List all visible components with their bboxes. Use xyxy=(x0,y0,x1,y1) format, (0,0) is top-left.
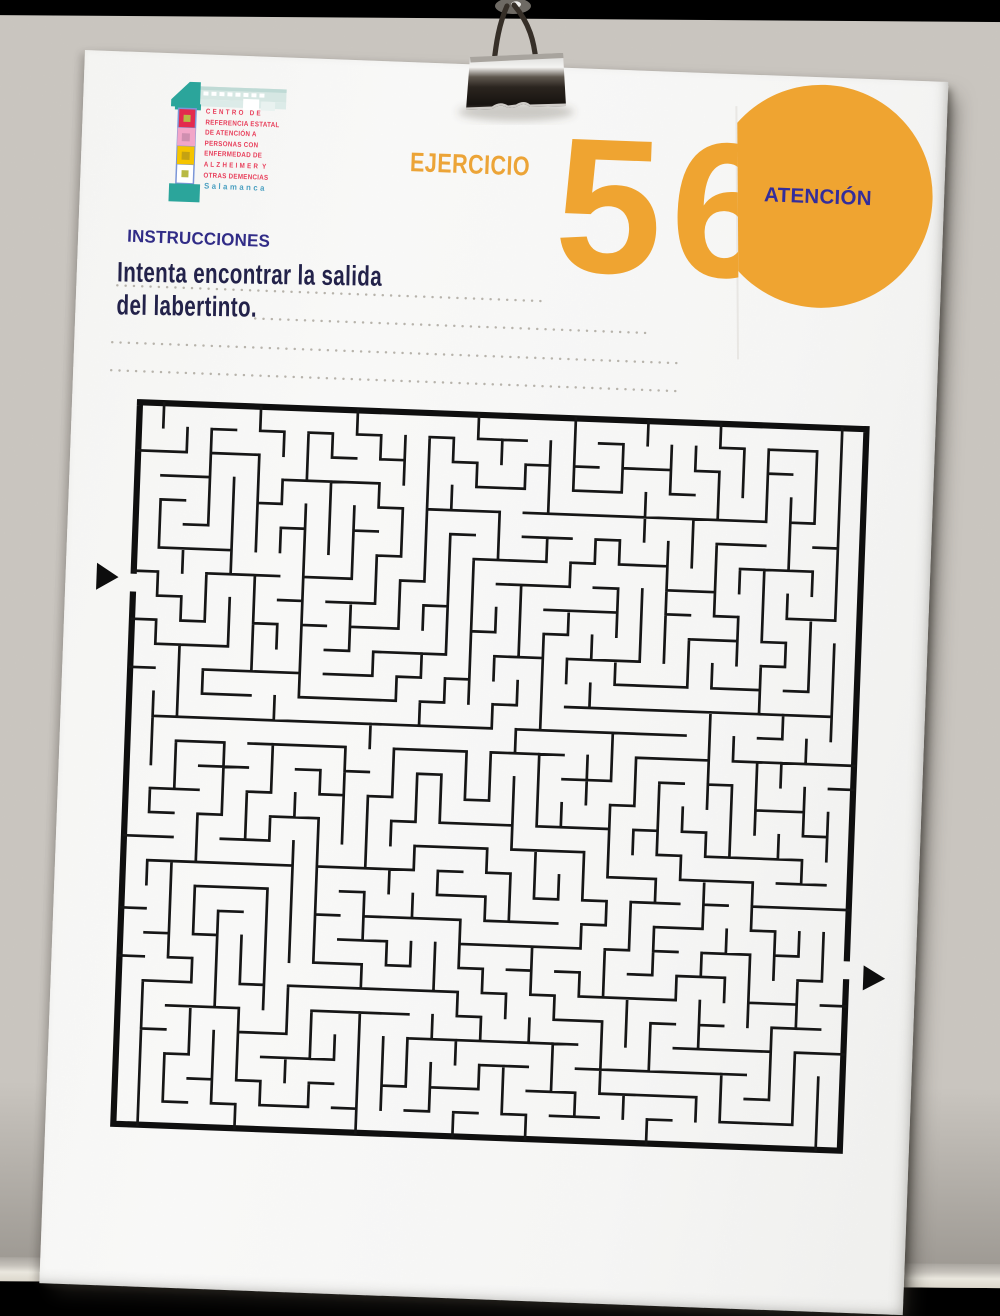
svg-text:ATENCIÓN: ATENCIÓN xyxy=(764,182,873,210)
